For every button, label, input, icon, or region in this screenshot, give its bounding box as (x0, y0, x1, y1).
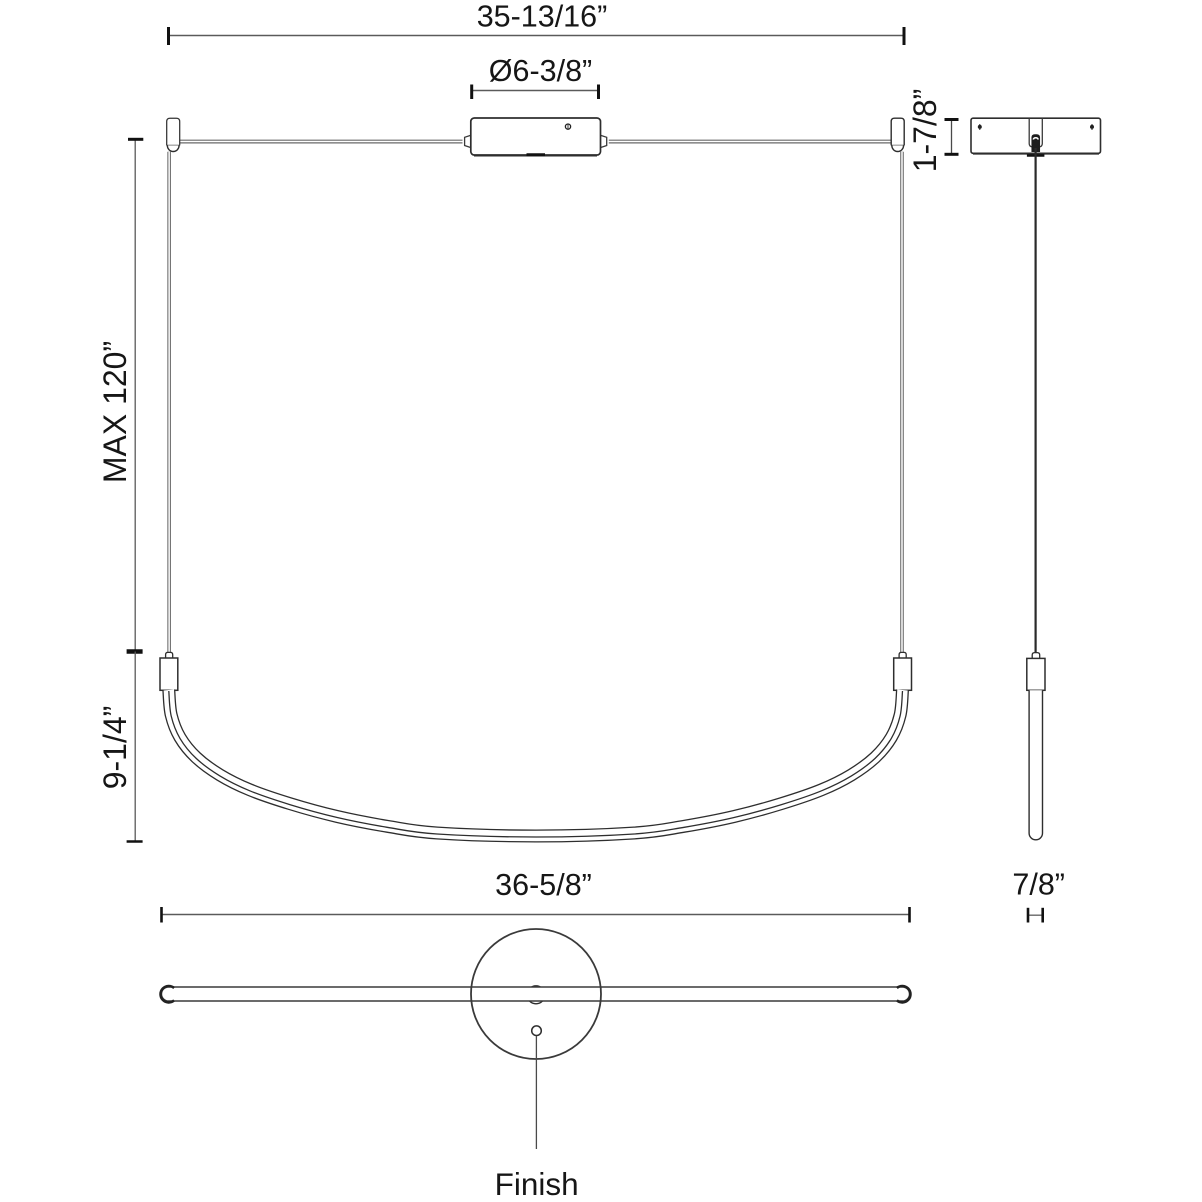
svg-text:1-7/8”: 1-7/8” (907, 89, 943, 173)
svg-text:Ø6-3/8”: Ø6-3/8” (489, 54, 592, 88)
svg-text:Finish: Finish (495, 1166, 579, 1202)
svg-text:35-13/16”: 35-13/16” (477, 0, 608, 34)
svg-text:36-5/8”: 36-5/8” (495, 868, 592, 902)
svg-text:MAX 120”: MAX 120” (97, 341, 133, 483)
svg-text:9-1/4”: 9-1/4” (97, 706, 133, 790)
svg-text:7/8”: 7/8” (1012, 868, 1065, 902)
